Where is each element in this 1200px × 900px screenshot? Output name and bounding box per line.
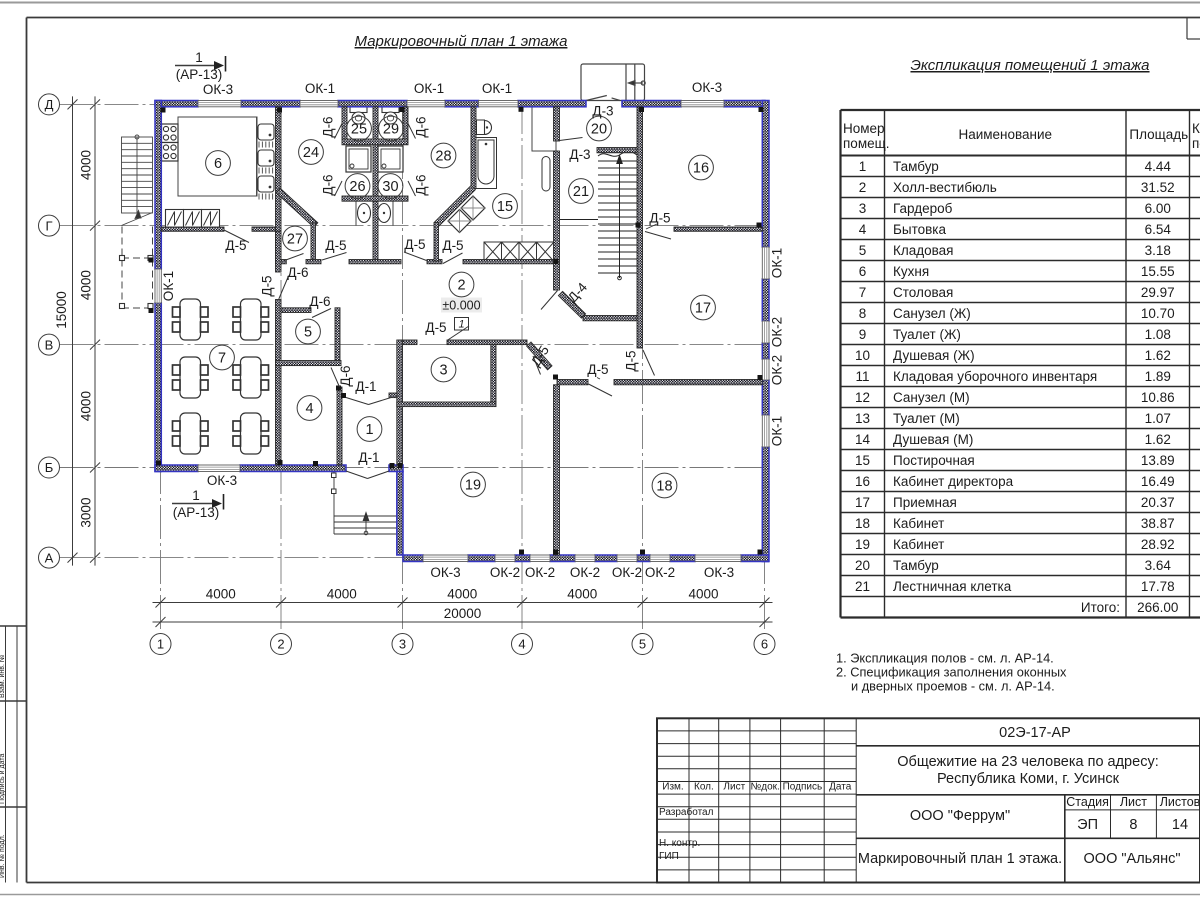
svg-text:1: 1	[859, 159, 867, 174]
svg-text:Д-6: Д-6	[414, 174, 429, 195]
svg-text:ЭП: ЭП	[1077, 817, 1098, 833]
svg-text:Душевая (Ж): Душевая (Ж)	[893, 348, 975, 363]
svg-text:Д-6: Д-6	[321, 116, 336, 137]
svg-text:ООО "Феррум": ООО "Феррум"	[910, 808, 1010, 824]
svg-text:20: 20	[855, 558, 870, 573]
svg-text:3.64: 3.64	[1145, 558, 1172, 573]
svg-text:Наименование: Наименование	[958, 127, 1052, 142]
svg-text:1: 1	[365, 422, 373, 438]
svg-text:ОК-2: ОК-2	[770, 355, 785, 385]
svg-text:20000: 20000	[444, 606, 482, 621]
svg-text:Кладовая уборочного инвентаря: Кладовая уборочного инвентаря	[893, 369, 1097, 384]
svg-text:15.55: 15.55	[1141, 264, 1175, 279]
svg-text:ОК-2: ОК-2	[612, 565, 642, 580]
svg-text:Д-6: Д-6	[309, 294, 330, 309]
svg-text:ОК-3: ОК-3	[692, 80, 722, 95]
svg-text:8: 8	[1129, 817, 1137, 833]
svg-text:4000: 4000	[206, 587, 236, 602]
svg-text:2. Спецификация заполнения око: 2. Спецификация заполнения оконных	[836, 665, 1067, 680]
svg-text:4000: 4000	[688, 587, 718, 602]
svg-text:ОК-2: ОК-2	[525, 565, 555, 580]
svg-text:1: 1	[157, 637, 164, 652]
svg-text:4000: 4000	[79, 150, 94, 180]
svg-text:Приемная: Приемная	[893, 495, 957, 510]
svg-text:Взам. инв. №: Взам. инв. №	[0, 655, 6, 698]
svg-text:1.62: 1.62	[1145, 348, 1171, 363]
svg-text:13: 13	[855, 411, 870, 426]
svg-text:3.18: 3.18	[1145, 243, 1171, 258]
svg-text:помещ.: помещ.	[843, 136, 889, 151]
svg-text:Подпись: Подпись	[783, 782, 823, 793]
svg-text:20.37: 20.37	[1141, 495, 1175, 510]
svg-text:Д: Д	[45, 97, 54, 112]
svg-text:Бытовка: Бытовка	[893, 222, 946, 237]
svg-text:Республика Коми, г. Усинск: Республика Коми, г. Усинск	[937, 771, 1120, 787]
svg-text:10: 10	[855, 348, 870, 363]
svg-text:4: 4	[518, 637, 525, 652]
svg-text:Кол.: Кол.	[694, 782, 714, 793]
svg-text:Экспликация помещений 1 этажа: Экспликация помещений 1 этажа	[910, 57, 1149, 74]
svg-text:Холл-вестибюль: Холл-вестибюль	[893, 180, 997, 195]
svg-text:№док.: №док.	[751, 782, 780, 793]
svg-text:Д-6: Д-6	[414, 116, 429, 137]
svg-text:Д-3: Д-3	[569, 147, 590, 162]
svg-text:8: 8	[859, 306, 867, 321]
svg-text:26: 26	[349, 179, 365, 195]
svg-text:Санузел (М): Санузел (М)	[893, 390, 970, 405]
svg-text:Столовая: Столовая	[893, 285, 953, 300]
svg-text:20: 20	[591, 122, 607, 138]
svg-text:Гардероб: Гардероб	[893, 201, 953, 216]
svg-text:Д-1: Д-1	[355, 379, 376, 394]
svg-text:Маркировочный план 1 этажа: Маркировочный план 1 этажа	[355, 33, 568, 50]
svg-text:Кабинет директора: Кабинет директора	[893, 474, 1014, 489]
svg-text:4000: 4000	[79, 270, 94, 300]
svg-text:Дата: Дата	[829, 782, 852, 793]
svg-text:Туалет (М): Туалет (М)	[893, 411, 960, 426]
svg-text:Изм.: Изм.	[662, 782, 683, 793]
svg-text:27: 27	[287, 232, 303, 248]
svg-text:Кладовая: Кладовая	[893, 243, 953, 258]
svg-text:Площадь: Площадь	[1129, 127, 1188, 142]
svg-text:4000: 4000	[567, 587, 597, 602]
svg-text:Д-5: Д-5	[624, 350, 639, 371]
svg-text:6.00: 6.00	[1145, 201, 1171, 216]
svg-text:28.92: 28.92	[1141, 537, 1175, 552]
svg-text:4.44: 4.44	[1145, 159, 1172, 174]
svg-text:266.00: 266.00	[1137, 600, 1178, 615]
svg-text:Д-5: Д-5	[649, 211, 670, 226]
svg-text:Лист: Лист	[723, 782, 745, 793]
svg-text:12: 12	[855, 390, 870, 405]
svg-text:ОК-2: ОК-2	[770, 317, 785, 347]
svg-text:5: 5	[859, 243, 867, 258]
svg-text:Туалет (Ж): Туалет (Ж)	[893, 327, 961, 342]
svg-text:Д-6: Д-6	[321, 174, 336, 195]
svg-text:Тамбур: Тамбур	[893, 558, 939, 573]
svg-text:16: 16	[693, 161, 709, 177]
svg-text:ОК-1: ОК-1	[770, 416, 785, 446]
svg-text:16: 16	[855, 474, 870, 489]
svg-text:38.87: 38.87	[1141, 516, 1175, 531]
svg-text:(АР-13): (АР-13)	[176, 67, 223, 82]
svg-text:Д-5: Д-5	[325, 238, 346, 253]
svg-text:Д-5: Д-5	[442, 238, 463, 253]
svg-text:Д-5: Д-5	[425, 320, 446, 335]
svg-text:Д-5: Д-5	[260, 275, 275, 296]
svg-text:19: 19	[855, 537, 870, 552]
svg-text:13.89: 13.89	[1141, 453, 1175, 468]
svg-text:18: 18	[855, 516, 870, 531]
svg-text:Д-6: Д-6	[287, 265, 308, 280]
svg-text:14: 14	[855, 432, 871, 447]
svg-text:Листов: Листов	[1160, 795, 1200, 809]
svg-text:1: 1	[458, 319, 464, 331]
svg-text:31.52: 31.52	[1141, 180, 1175, 195]
svg-text:ОК-2: ОК-2	[490, 565, 520, 580]
svg-text:6: 6	[214, 156, 222, 172]
svg-text:16.49: 16.49	[1141, 474, 1175, 489]
svg-text:Маркировочный план 1 этажа.: Маркировочный план 1 этажа.	[858, 851, 1062, 867]
svg-text:Д-5: Д-5	[404, 237, 425, 252]
svg-text:Общежитие на 23 человека по ад: Общежитие на 23 человека по адресу:	[897, 754, 1158, 770]
svg-text:Лист: Лист	[1120, 795, 1147, 809]
svg-text:1: 1	[195, 50, 203, 65]
svg-text:29: 29	[383, 122, 399, 138]
svg-text:Н. контр.: Н. контр.	[659, 838, 700, 849]
svg-text:21: 21	[573, 184, 589, 200]
svg-text:Подпись и дата: Подпись и дата	[0, 754, 6, 804]
svg-text:ОК-1: ОК-1	[161, 271, 176, 301]
svg-text:5: 5	[304, 325, 312, 341]
svg-text:7: 7	[859, 285, 867, 300]
svg-text:25: 25	[351, 122, 367, 138]
svg-text:Итого:: Итого:	[1081, 600, 1120, 615]
svg-text:ОК-1: ОК-1	[482, 81, 512, 96]
svg-text:4000: 4000	[447, 587, 477, 602]
svg-text:1.07: 1.07	[1145, 411, 1171, 426]
svg-text:6.54: 6.54	[1145, 222, 1172, 237]
svg-text:2: 2	[457, 278, 465, 294]
svg-text:±0.000: ±0.000	[442, 299, 480, 313]
svg-text:Инв. № подл.: Инв. № подл.	[0, 834, 6, 878]
svg-text:6: 6	[859, 264, 867, 279]
svg-text:Кабинет: Кабинет	[893, 516, 944, 531]
svg-text:Стадия: Стадия	[1066, 795, 1109, 809]
svg-text:Душевая (М): Душевая (М)	[893, 432, 973, 447]
svg-text:5: 5	[639, 637, 646, 652]
svg-text:9: 9	[859, 327, 867, 342]
svg-text:ГИП: ГИП	[659, 851, 679, 862]
svg-text:1.62: 1.62	[1145, 432, 1171, 447]
svg-text:15000: 15000	[54, 291, 69, 329]
svg-text:17: 17	[855, 495, 870, 510]
svg-text:Постирочная: Постирочная	[893, 453, 975, 468]
svg-text:24: 24	[303, 145, 319, 161]
svg-text:ОК-3: ОК-3	[203, 82, 233, 97]
svg-text:ООО "Альянс": ООО "Альянс"	[1084, 851, 1181, 867]
svg-text:Д-3: Д-3	[592, 104, 613, 119]
svg-text:15: 15	[497, 199, 513, 215]
svg-text:Д-5: Д-5	[587, 362, 608, 377]
svg-text:4: 4	[859, 222, 867, 237]
svg-text:Тамбур: Тамбур	[893, 159, 939, 174]
svg-text:ОК-1: ОК-1	[305, 81, 335, 96]
svg-text:18: 18	[656, 479, 672, 495]
svg-text:3: 3	[859, 201, 867, 216]
svg-text:1. Экспликация полов - см. л.: 1. Экспликация полов - см. л. АР-14.	[836, 651, 1054, 666]
svg-text:15: 15	[855, 453, 870, 468]
svg-text:ОК-1: ОК-1	[414, 81, 444, 96]
svg-text:ОК-2: ОК-2	[570, 565, 600, 580]
svg-text:Разработал: Разработал	[659, 806, 714, 818]
svg-text:28: 28	[435, 149, 451, 165]
svg-text:ОК-2: ОК-2	[645, 565, 675, 580]
svg-text:Кабинет: Кабинет	[893, 537, 944, 552]
svg-text:Д-1: Д-1	[358, 450, 379, 465]
svg-text:30: 30	[382, 179, 398, 195]
svg-text:21: 21	[855, 579, 870, 594]
svg-text:7: 7	[218, 351, 226, 367]
svg-text:Лестничная клетка: Лестничная клетка	[893, 579, 1012, 594]
svg-text:2: 2	[859, 180, 867, 195]
svg-text:4000: 4000	[79, 391, 94, 421]
svg-text:17: 17	[695, 301, 711, 317]
svg-text:3: 3	[439, 363, 447, 379]
svg-text:11: 11	[855, 369, 869, 384]
svg-text:1.89: 1.89	[1145, 369, 1171, 384]
svg-text:17.78: 17.78	[1141, 579, 1175, 594]
svg-text:Кухня: Кухня	[893, 264, 929, 279]
svg-text:1: 1	[192, 488, 200, 503]
svg-text:29.97: 29.97	[1141, 285, 1175, 300]
svg-text:и дверных проемов - см. л. АР-: и дверных проемов - см. л. АР-14.	[851, 679, 1055, 694]
svg-text:(АР-13): (АР-13)	[173, 505, 220, 520]
svg-text:Г: Г	[45, 218, 52, 233]
svg-text:4000: 4000	[327, 587, 357, 602]
svg-text:Санузел (Ж): Санузел (Ж)	[893, 306, 971, 321]
svg-text:6: 6	[761, 637, 768, 652]
svg-text:В: В	[45, 337, 54, 352]
svg-text:ОК-3: ОК-3	[704, 565, 734, 580]
svg-text:14: 14	[1172, 817, 1188, 833]
svg-text:1.08: 1.08	[1145, 327, 1171, 342]
svg-text:А: А	[45, 550, 54, 565]
svg-text:4: 4	[305, 401, 313, 417]
svg-text:по: по	[1192, 136, 1200, 151]
svg-text:Д-6: Д-6	[338, 365, 353, 386]
svg-text:Д-5: Д-5	[225, 238, 246, 253]
svg-text:Б: Б	[45, 460, 54, 475]
svg-text:19: 19	[465, 478, 481, 494]
svg-text:2: 2	[277, 637, 284, 652]
svg-text:ОК-1: ОК-1	[770, 248, 785, 278]
svg-text:Ка: Ка	[1192, 121, 1200, 136]
svg-text:02Э-17-АР: 02Э-17-АР	[999, 725, 1071, 741]
svg-text:ОК-3: ОК-3	[430, 565, 460, 580]
svg-text:ОК-3: ОК-3	[207, 473, 237, 488]
svg-text:3000: 3000	[79, 498, 94, 528]
svg-text:10.70: 10.70	[1141, 306, 1175, 321]
svg-text:Номер: Номер	[843, 121, 885, 136]
svg-text:10.86: 10.86	[1141, 390, 1175, 405]
svg-text:3: 3	[399, 637, 406, 652]
